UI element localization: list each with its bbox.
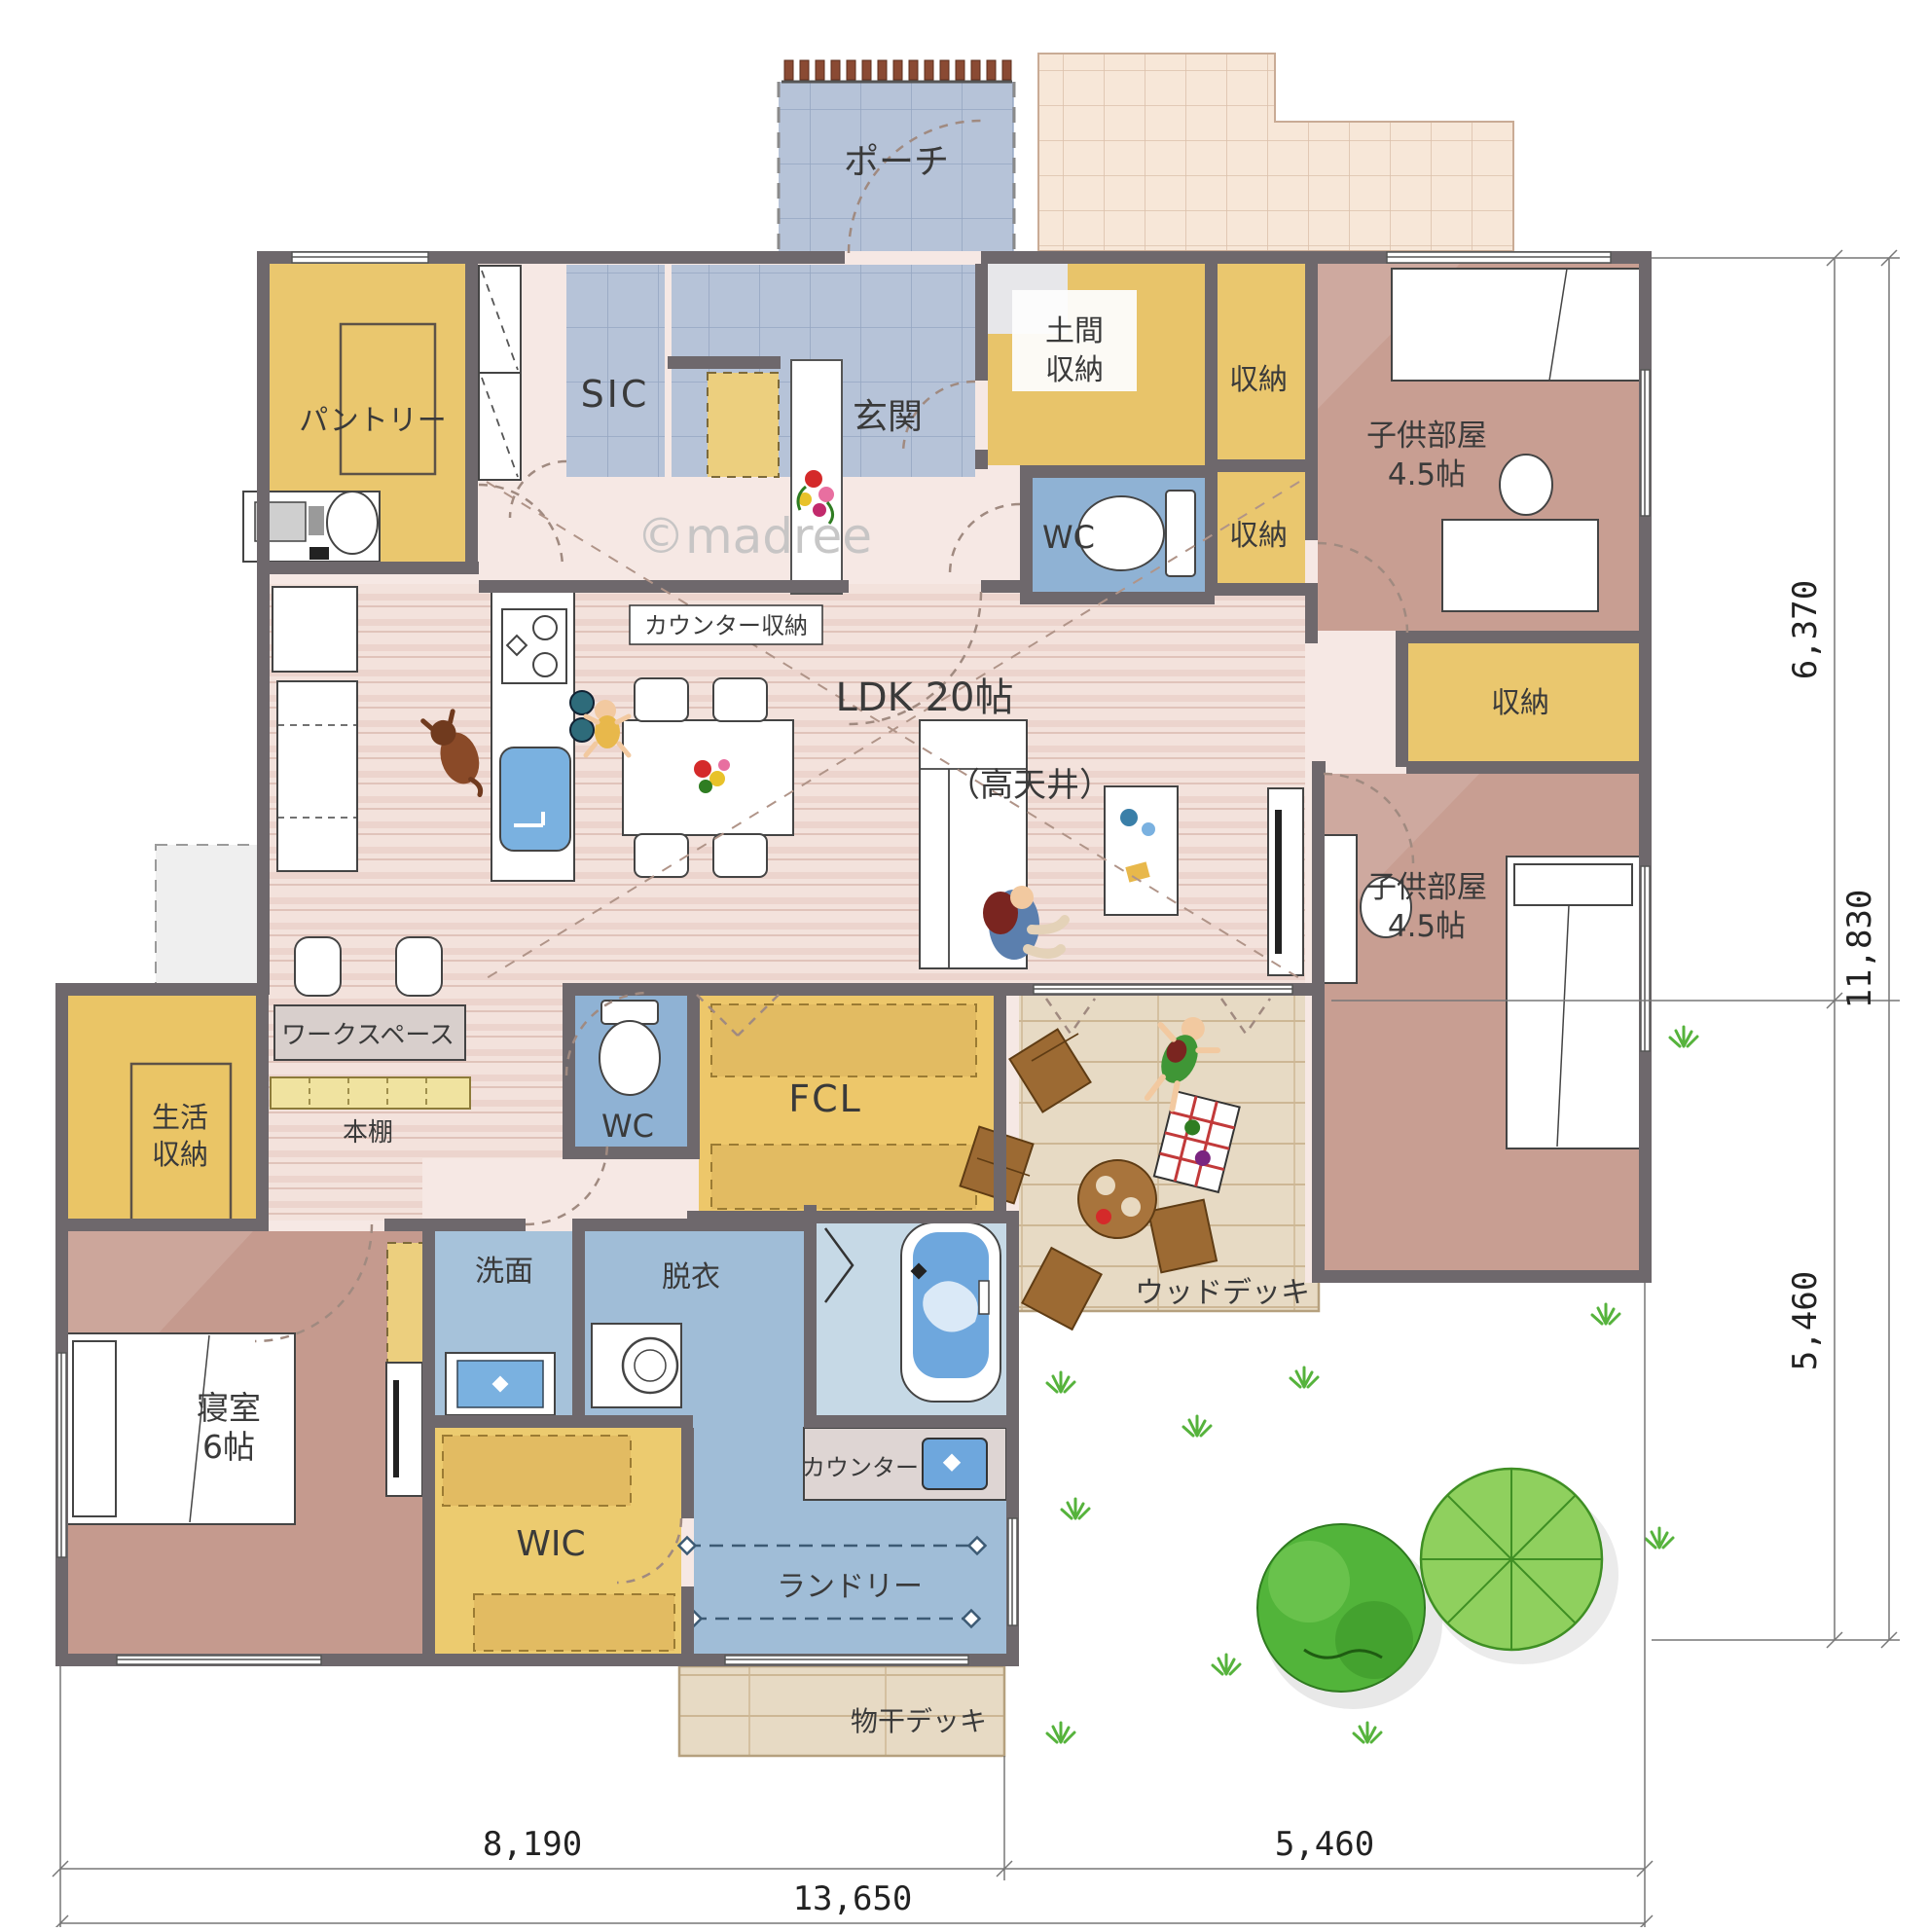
dim-right-bottom: 5,460 [1786,1271,1825,1370]
svg-text:子供部屋: 子供部屋 [1366,870,1487,905]
label-sic: SIC [581,373,650,416]
label-dressing: 脱衣 [662,1260,720,1294]
dim-bottom-total: 13,650 [793,1879,913,1918]
bookshelf-unit [271,1077,470,1109]
svg-text:生活: 生活 [152,1101,208,1134]
dim-right-total: 11,830 [1840,890,1879,1009]
workspace-stool [295,937,341,996]
storage-top-floor [1218,264,1305,459]
fcl-mat [711,1004,976,1076]
label-fcl: FCL [788,1077,862,1120]
floor-plan-page: ポーチ 玄関 SIC パントリー 土間 収納 収納 収納 WC 子供部屋 4.5… [0,0,1927,1927]
pantry-chair [327,492,378,554]
svg-text:収納: 収納 [1045,353,1104,387]
label-storage-mid: 収納 [1229,519,1288,553]
label-bedroom: 寝室 6帖 [197,1389,261,1466]
label-storage-top: 収納 [1229,363,1288,397]
label-entrance: 玄関 [853,397,923,437]
label-counter: カウンター [802,1454,919,1481]
svg-text:カウンター収納: カウンター収納 [644,612,808,639]
sic-floor [566,265,665,477]
svg-text:LDK 20帖: LDK 20帖 [836,675,1014,720]
label-workspace: ワークスペース [281,1021,454,1050]
watermark: ©madree [636,508,872,565]
bedroom-tv-board [386,1363,422,1496]
shoe-cabinet [708,373,779,477]
svg-text:土間: 土間 [1045,314,1104,348]
kitchen-cupboard [277,681,357,871]
label-drying-deck: 物干デッキ [851,1705,987,1737]
label-wc2: WC [601,1108,654,1145]
hall-closet [479,266,521,480]
label-storage-kids: 収納 [1491,686,1549,720]
dim-bottom-right: 5,460 [1275,1825,1374,1864]
label-wood-deck: ウッドデッキ [1135,1276,1310,1310]
label-washroom: 洗面 [475,1255,533,1289]
label-wc1: WC [1042,519,1095,556]
refrigerator [273,587,357,672]
approach-tiles [1038,54,1513,251]
tree-bush [1257,1524,1442,1709]
label-porch: ポーチ [844,142,949,182]
label-wic: WIC [516,1524,585,1564]
svg-text:6帖: 6帖 [202,1428,255,1466]
wic-mat [474,1594,674,1651]
toilet-icon [1078,491,1195,576]
low-table [1105,786,1178,915]
toilet-icon [600,1001,660,1095]
svg-text:（高天井）: （高天井） [947,766,1112,805]
svg-text:4.5帖: 4.5帖 [1388,457,1466,492]
label-pantry: パントリー [299,404,447,438]
dim-right-top: 6,370 [1786,580,1825,679]
stove-icon [502,609,566,683]
label-counter-storage: カウンター収納 [630,605,822,644]
svg-text:寝室: 寝室 [197,1389,261,1427]
svg-text:収納: 収納 [152,1138,208,1171]
bathtub-icon [901,1222,1000,1402]
wic-mat [443,1436,631,1506]
porch-fence [782,60,1012,82]
kitchen-sink-icon [500,747,570,851]
label-laundry: ランドリー [777,1570,923,1604]
tree-round [1421,1469,1618,1664]
workspace-stool [396,937,442,996]
deck-table [1078,1160,1156,1238]
bedroom-bed [65,1333,295,1524]
svg-text:4.5帖: 4.5帖 [1388,909,1466,944]
label-bookshelf: 本棚 [343,1118,393,1148]
washing-machine-icon [592,1324,681,1407]
svg-text:子供部屋: 子供部屋 [1366,419,1487,454]
floor-plan: ポーチ 玄関 SIC パントリー 土間 収納 収納 収納 WC 子供部屋 4.5… [0,0,1927,1927]
fcl-mat [711,1145,976,1209]
tv-board [1268,788,1303,975]
dim-bottom-left: 8,190 [483,1825,582,1864]
